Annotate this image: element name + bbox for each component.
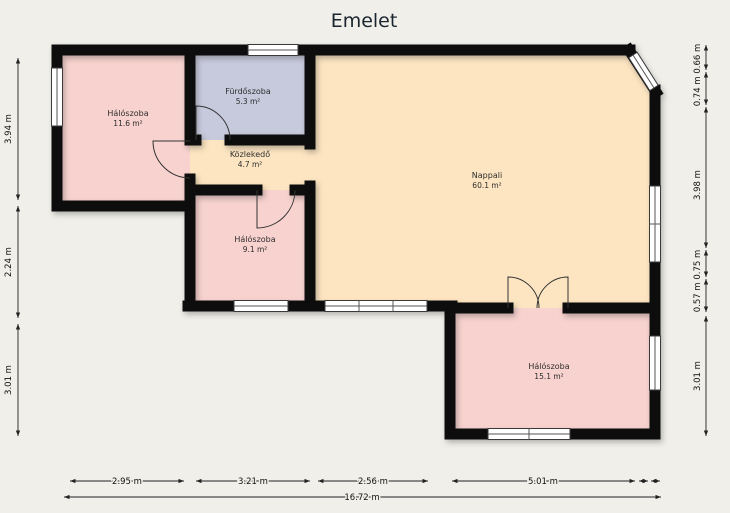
- page-title: Emelet: [331, 10, 398, 32]
- dim-bottom-2-label: 3.21 m: [238, 477, 268, 487]
- dim-right-top-label: 0.74 m 0.66 m: [693, 44, 703, 107]
- room-area-bedroom-middle: 9.1 m²: [243, 245, 268, 254]
- floorplan-page: Emelet: [0, 0, 730, 513]
- room-area-hallway: 4.7 m²: [238, 160, 263, 169]
- dim-total-label: 16.72 m: [344, 493, 379, 503]
- dim-left-middle-label: 2.24 m: [4, 247, 14, 277]
- dim-right-bottom-label: 3.01 m: [693, 361, 703, 391]
- dim-bottom-1-label: 2.95 m: [112, 477, 142, 487]
- room-label-bathroom: Fürdőszoba: [225, 87, 271, 96]
- room-label-living: Nappali: [472, 171, 502, 180]
- dim-right-middle-label: 3.98 m: [693, 170, 703, 200]
- dim-right-lower-label: 0.57 m 0.75 m: [693, 250, 703, 313]
- room-label-bedroom-bottom-right: Hálószoba: [528, 361, 569, 371]
- room-label-bedroom-top-left: Hálószoba: [107, 108, 148, 118]
- room-label-hallway: Közlekedő: [230, 150, 270, 159]
- dim-left-top-label: 3.94 m: [4, 114, 14, 144]
- room-area-bedroom-top-left: 11.6 m²: [113, 119, 142, 128]
- floorplan-svg: Emelet: [0, 0, 730, 513]
- room-area-bedroom-bottom-right: 15.1 m²: [534, 372, 563, 381]
- dim-bottom-3-label: 2.56 m: [358, 477, 388, 487]
- room-bedroom-bottom-right: [450, 308, 655, 434]
- room-area-bathroom: 5.3 m²: [236, 97, 261, 106]
- room-area-living: 60.1 m²: [472, 181, 501, 190]
- room-bedroom-top-left: [57, 50, 190, 206]
- dim-bottom-4-label: 5.01 m: [528, 477, 558, 487]
- room-label-bedroom-middle: Hálószoba: [234, 234, 275, 244]
- dim-left-bottom-label: 3.01 m: [4, 365, 14, 395]
